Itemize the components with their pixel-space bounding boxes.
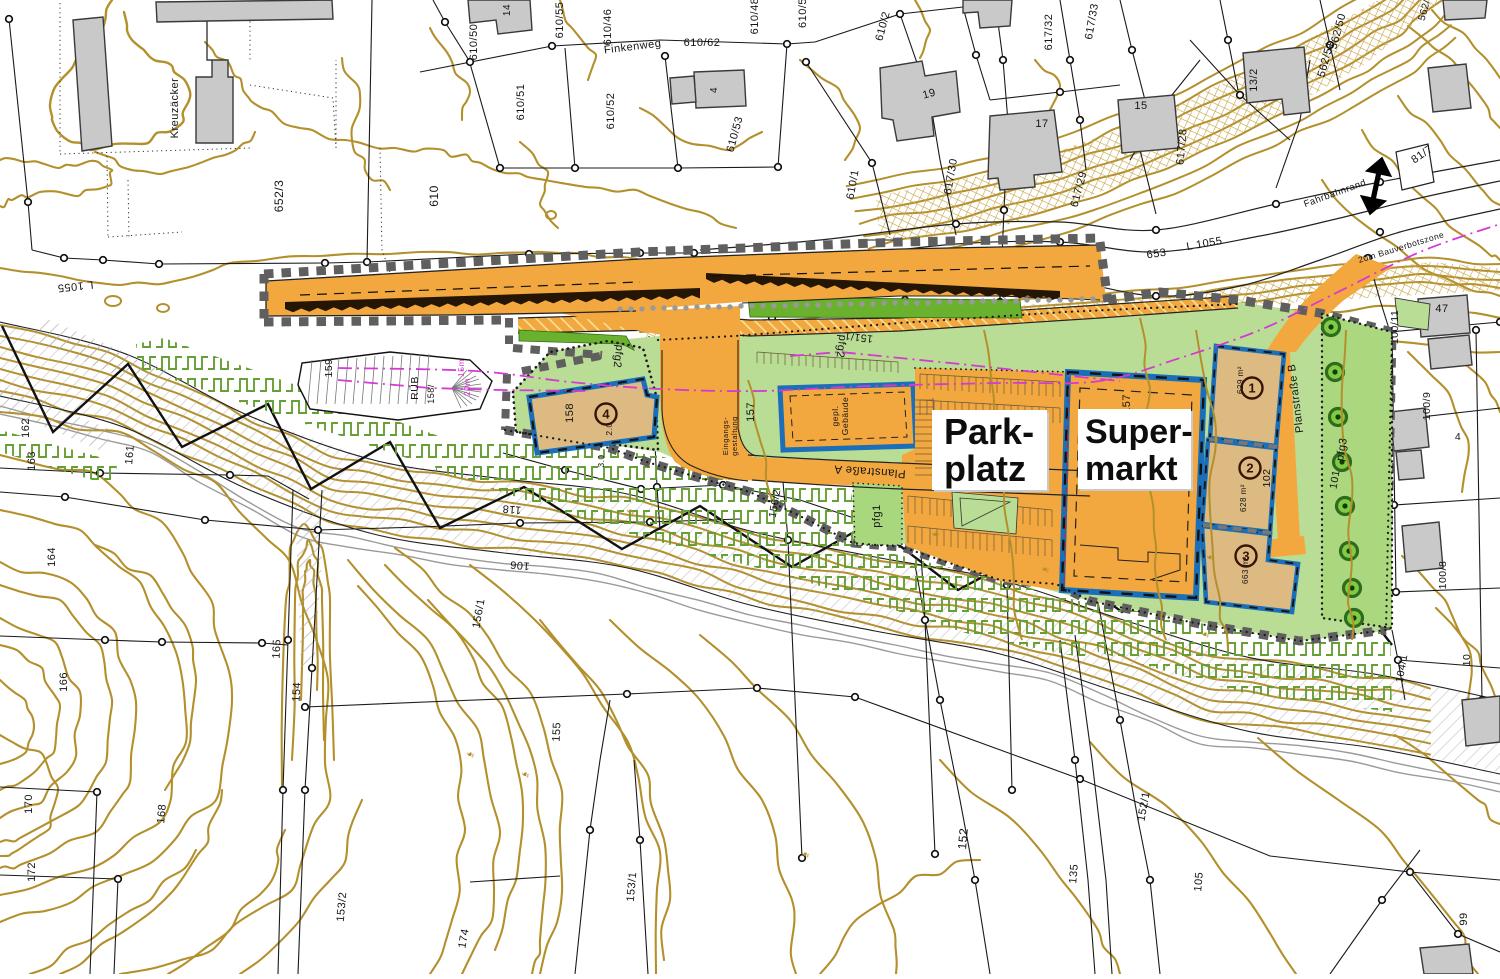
svg-text:17: 17 <box>1035 118 1048 130</box>
svg-text:13/2: 13/2 <box>1248 68 1260 91</box>
svg-text:4: 4 <box>709 87 720 93</box>
svg-text:Super-: Super- <box>1085 413 1193 451</box>
svg-text:4: 4 <box>602 407 610 422</box>
svg-text:172: 172 <box>26 862 38 882</box>
svg-text:158: 158 <box>564 403 576 423</box>
svg-text:610: 610 <box>427 185 441 207</box>
svg-text:markt: markt <box>1085 450 1178 488</box>
svg-text:610/50: 610/50 <box>468 24 480 61</box>
svg-text:105: 105 <box>1192 871 1206 892</box>
svg-text:118: 118 <box>502 502 522 516</box>
svg-text:162: 162 <box>20 418 32 438</box>
svg-text:platz: platz <box>944 448 1026 489</box>
svg-text:610/48: 610/48 <box>749 0 761 34</box>
svg-text:15: 15 <box>1134 100 1147 112</box>
svg-text:14: 14 <box>502 4 513 16</box>
svg-text:4: 4 <box>1455 431 1461 443</box>
svg-text:157: 157 <box>745 402 757 422</box>
svg-text:610/52: 610/52 <box>605 93 617 130</box>
svg-text:1: 1 <box>1248 381 1255 396</box>
svg-text:610/62: 610/62 <box>684 37 721 49</box>
svg-text:2.0: 2.0 <box>604 422 614 435</box>
svg-text:Eingangs-: Eingangs- <box>721 417 730 455</box>
svg-text:102: 102 <box>1261 468 1273 487</box>
svg-text:629 m²: 629 m² <box>1236 366 1245 394</box>
svg-text:163: 163 <box>26 451 38 471</box>
svg-text:617/32: 617/32 <box>1043 14 1055 51</box>
svg-text:159: 159 <box>323 358 335 377</box>
svg-text:3.0: 3.0 <box>596 454 606 467</box>
svg-text:158/: 158/ <box>426 384 436 404</box>
svg-text:165: 165 <box>270 639 283 659</box>
svg-text:155: 155 <box>550 722 563 742</box>
svg-text:663 m²: 663 m² <box>1241 556 1250 584</box>
svg-text:135: 135 <box>1067 863 1081 884</box>
svg-text:gepl.: gepl. <box>830 406 840 427</box>
svg-text:20m: 20m <box>462 378 472 396</box>
svg-text:610/5: 610/5 <box>797 0 809 28</box>
svg-text:164: 164 <box>46 547 58 567</box>
svg-text:106: 106 <box>509 558 530 572</box>
svg-text:2: 2 <box>1246 461 1253 476</box>
svg-text:166: 166 <box>58 672 70 692</box>
svg-text:Gebäude: Gebäude <box>840 397 850 435</box>
svg-text:pfg1: pfg1 <box>871 504 883 527</box>
svg-text:168: 168 <box>155 803 169 824</box>
svg-text:100/11: 100/11 <box>1389 310 1401 344</box>
svg-text:170: 170 <box>23 794 35 814</box>
svg-text:610/46: 610/46 <box>602 9 614 46</box>
svg-text:652/3: 652/3 <box>272 180 286 213</box>
svg-text:Kreuzäcker: Kreuzäcker <box>169 78 181 139</box>
svg-text:152: 152 <box>955 827 971 850</box>
svg-text:RÜB: RÜB <box>409 376 421 400</box>
svg-text:161: 161 <box>123 444 137 465</box>
svg-text:154: 154 <box>290 682 303 702</box>
svg-text:10: 10 <box>1461 654 1473 667</box>
svg-text:610/51: 610/51 <box>515 84 527 121</box>
svg-text:100/8: 100/8 <box>1437 561 1449 590</box>
svg-text:99: 99 <box>1458 912 1470 925</box>
svg-text:Park-: Park- <box>944 411 1034 452</box>
svg-text:628 m²: 628 m² <box>1239 484 1248 512</box>
svg-text:100/9: 100/9 <box>1421 392 1433 421</box>
svg-text:610/55: 610/55 <box>554 2 566 39</box>
svg-text:15m: 15m <box>456 359 466 377</box>
svg-text:47: 47 <box>1435 303 1448 315</box>
svg-text:gestaltung: gestaltung <box>730 416 739 456</box>
